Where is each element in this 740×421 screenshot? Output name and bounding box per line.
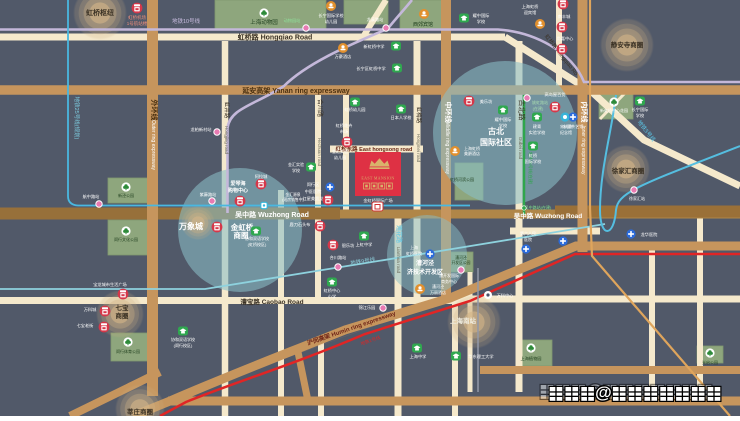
svg-text:虹桥中心: 虹桥中心	[324, 287, 342, 294]
svg-text:漕开发国际: 漕开发国际	[439, 272, 459, 278]
svg-text:上海虹桥: 上海虹桥	[522, 3, 540, 10]
svg-text:新虹桥中心花园: 新虹桥中心花园	[600, 107, 628, 113]
svg-text:Gubei road: Gubei road	[518, 137, 523, 160]
svg-text:七宝老街: 七宝老街	[77, 322, 94, 329]
svg-text:吴中路 Wuzhong Road: 吴中路 Wuzhong Road	[514, 211, 583, 220]
svg-text:Hechuan road: Hechuan road	[317, 138, 322, 167]
svg-text:徐家汇站: 徐家汇站	[629, 195, 645, 201]
svg-text:Middle ring expressway: Middle ring expressway	[444, 122, 450, 175]
svg-text:长宁国际学校: 长宁国际学校	[318, 12, 344, 19]
svg-text:学校: 学校	[636, 112, 645, 119]
svg-text:日本人学校: 日本人学校	[391, 114, 413, 121]
svg-text:动物园站: 动物园站	[284, 17, 301, 24]
svg-text:虹桥枢纽: 虹桥枢纽	[86, 8, 114, 17]
svg-text:高岛屋百货: 高岛屋百货	[545, 91, 566, 98]
svg-text:闵行文化公园: 闵行文化公园	[114, 236, 138, 242]
svg-text:EAST MANSION: EAST MANSION	[361, 176, 394, 181]
svg-text:古北路: 古北路	[518, 100, 527, 121]
svg-text:莘庄商圈: 莘庄商圈	[127, 407, 154, 416]
svg-text:万豪酒店: 万豪酒店	[335, 53, 352, 60]
svg-text:建青: 建青	[533, 123, 541, 130]
svg-text:新泾公园: 新泾公园	[118, 192, 134, 198]
svg-text:(闵行校区): (闵行校区)	[174, 342, 193, 348]
svg-text:(虹桥校区): (虹桥校区)	[248, 241, 267, 247]
svg-text:内环线: 内环线	[580, 102, 589, 123]
svg-text:红星美凯龙: 红星美凯龙	[303, 195, 325, 202]
svg-text:万科城: 万科城	[84, 306, 97, 313]
svg-text:长宁区虹桥中学: 长宁区虹桥中学	[356, 65, 385, 72]
svg-text:合川路: 合川路	[316, 99, 324, 117]
svg-text:漕河泾: 漕河泾	[455, 255, 467, 260]
svg-text:外环线: 外环线	[150, 100, 159, 121]
svg-text:虹桥医院: 虹桥医院	[406, 250, 422, 256]
svg-text:迎宾馆: 迎宾馆	[524, 9, 537, 16]
svg-text:虹桥花卉: 虹桥花卉	[336, 122, 353, 129]
svg-text:市场: 市场	[340, 128, 348, 135]
svg-text:光启公园: 光启公园	[702, 359, 718, 365]
svg-text:美乐坊: 美乐坊	[480, 98, 493, 105]
svg-text:七宝: 七宝	[116, 303, 130, 312]
svg-text:协和双语学校: 协和双语学校	[245, 235, 269, 241]
svg-text:尚嘉中心: 尚嘉中心	[557, 35, 575, 42]
svg-text:协和双语学校: 协和双语学校	[171, 336, 195, 342]
svg-text:万象城: 万象城	[178, 221, 203, 231]
svg-text:1号航站楼: 1号航站楼	[127, 20, 148, 27]
svg-text:金汇实验: 金汇实验	[332, 148, 348, 154]
svg-text:上海: 上海	[410, 244, 418, 250]
svg-text:金汇源泉: 金汇源泉	[285, 192, 300, 197]
svg-text:万丽酒店: 万丽酒店	[430, 289, 446, 295]
svg-text:Hongmei road: Hongmei road	[416, 134, 421, 163]
svg-text:地铁25号线(规划): 地铁25号线(规划)	[73, 97, 81, 140]
svg-text:合川路站: 合川路站	[330, 254, 347, 261]
svg-text:长宁国际: 长宁国际	[632, 106, 649, 113]
svg-text:纪念馆: 纪念馆	[560, 129, 572, 135]
svg-text:静安寺商圈: 静安寺商圈	[611, 40, 644, 49]
svg-text:紫藤路站: 紫藤路站	[200, 191, 217, 198]
svg-text:航中路站: 航中路站	[83, 193, 100, 200]
svg-text:第六人民: 第六人民	[520, 230, 536, 236]
svg-text:锦江乐园: 锦江乐园	[359, 304, 376, 311]
svg-text:上海南站: 上海南站	[450, 316, 477, 325]
svg-text:上海中学: 上海中学	[410, 353, 427, 360]
svg-text:(现房销售中): (现房销售中)	[282, 197, 304, 202]
svg-text:虹梅路: 虹梅路	[415, 107, 423, 124]
svg-text:学校: 学校	[292, 167, 300, 173]
svg-text:购物中心: 购物中心	[228, 187, 248, 194]
svg-text:虹井路: 虹井路	[223, 102, 231, 119]
svg-text:济技术开发区: 济技术开发区	[407, 268, 443, 276]
svg-text:上虹中学: 上虹中学	[356, 241, 373, 248]
svg-text:中环线: 中环线	[444, 102, 453, 123]
svg-text:学校: 学校	[499, 122, 508, 129]
svg-text:闵行区: 闵行区	[307, 181, 320, 188]
svg-text:虹桥河滨公园: 虹桥河滨公园	[450, 176, 474, 182]
svg-text:漕宝路 Caobao Road: 漕宝路 Caobao Road	[240, 297, 303, 306]
svg-text:美爵酒店: 美爵酒店	[464, 150, 480, 156]
svg-text:宝龙城市生活广场: 宝龙城市生活广场	[93, 281, 127, 288]
svg-text:国际社区: 国际社区	[480, 137, 512, 147]
svg-text:龙柏新村站: 龙柏新村站	[191, 126, 212, 133]
svg-text:吴中路站(在建): 吴中路站(在建)	[525, 204, 552, 210]
svg-text:Inner ring expressway: Inner ring expressway	[580, 126, 586, 175]
svg-text:虹桥: 虹桥	[529, 152, 538, 159]
svg-text:延安高架 Yanan ring expressway: 延安高架 Yanan ring expressway	[241, 86, 349, 95]
svg-text:耀中国际: 耀中国际	[495, 116, 512, 123]
svg-text:万科中心: 万科中心	[497, 292, 515, 299]
svg-text:@: @	[595, 383, 612, 402]
svg-text:南丰城: 南丰城	[558, 13, 571, 20]
svg-text:商圈: 商圈	[116, 311, 130, 320]
svg-text:开发区公园: 开发区公园	[452, 260, 471, 265]
svg-text:华东理工大学: 华东理工大学	[468, 353, 493, 360]
svg-text:银乐坊: 银乐坊	[342, 242, 355, 249]
svg-text:徐家汇商圈: 徐家汇商圈	[611, 166, 645, 175]
svg-text:幼儿园: 幼儿园	[334, 154, 346, 160]
svg-text:虹桥路 Hongqiao Road: 虹桥路 Hongqiao Road	[238, 33, 313, 42]
svg-text:宋庆龄: 宋庆龄	[560, 123, 572, 129]
svg-text:小学: 小学	[328, 293, 336, 300]
svg-text:爱琴海: 爱琴海	[230, 180, 245, 187]
svg-text:新虹桥中学: 新虹桥中学	[364, 43, 385, 50]
svg-text:(在建): (在建)	[533, 105, 544, 111]
svg-text:Lianhua road: Lianhua road	[396, 247, 401, 274]
svg-text:Outer ring expressway: Outer ring expressway	[150, 120, 156, 171]
svg-text:虹桥机场: 虹桥机场	[128, 14, 146, 21]
svg-text:幼儿园: 幼儿园	[325, 18, 338, 25]
svg-text:医院: 医院	[524, 236, 532, 242]
svg-text:莲花路: 莲花路	[395, 225, 403, 243]
svg-text:上海动物园: 上海动物园	[250, 18, 278, 26]
svg-text:上海植物园: 上海植物园	[521, 355, 542, 362]
svg-text:虹桥幼儿园: 虹桥幼儿园	[345, 106, 366, 113]
svg-text:姚虹路站: 姚虹路站	[532, 99, 548, 105]
svg-text:实验学校: 实验学校	[529, 129, 547, 136]
svg-text:国际学校: 国际学校	[525, 158, 543, 165]
svg-text:西郊宾馆: 西郊宾馆	[413, 21, 433, 28]
svg-text:龙华医院: 龙华医院	[641, 231, 659, 238]
svg-text:Hongjing road: Hongjing road	[224, 126, 229, 155]
svg-text:地铁10号线: 地铁10号线	[172, 17, 201, 25]
svg-text:金汇实验: 金汇实验	[288, 161, 304, 167]
svg-text:龙溪路站: 龙溪路站	[367, 16, 384, 23]
svg-text:学校: 学校	[477, 18, 486, 25]
svg-text:吴中路 Wuzhong Road: 吴中路 Wuzhong Road	[235, 210, 309, 219]
svg-text:闵行体育公园: 闵行体育公园	[116, 348, 140, 354]
svg-text:中医医院: 中医医院	[305, 188, 323, 195]
svg-text:漕河泾: 漕河泾	[415, 259, 434, 267]
svg-text:漕河泾: 漕河泾	[432, 283, 444, 289]
svg-text:鹿刀石头布: 鹿刀石头布	[290, 221, 311, 228]
svg-text:耀中国际: 耀中国际	[473, 12, 490, 19]
